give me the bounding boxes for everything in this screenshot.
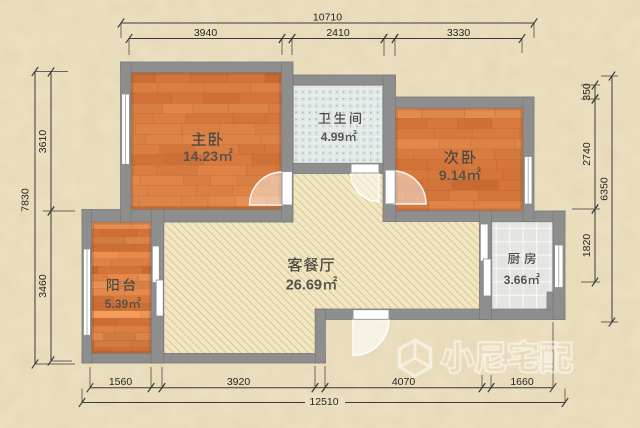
svg-text:2410: 2410 bbox=[326, 27, 350, 39]
svg-text:3610: 3610 bbox=[37, 130, 49, 154]
svg-text:3940: 3940 bbox=[194, 27, 218, 39]
svg-text:10710: 10710 bbox=[313, 12, 342, 24]
svg-text:3.66: 3.66 bbox=[504, 273, 528, 287]
svg-text:4070: 4070 bbox=[392, 376, 416, 388]
svg-text:1560: 1560 bbox=[109, 376, 133, 388]
svg-text:9.14: 9.14 bbox=[439, 167, 466, 183]
svg-text:14.23: 14.23 bbox=[183, 148, 218, 164]
svg-text:12510: 12510 bbox=[309, 396, 338, 408]
svg-text:3920: 3920 bbox=[227, 376, 251, 388]
svg-text:2740: 2740 bbox=[581, 142, 593, 166]
svg-text:350: 350 bbox=[581, 83, 593, 101]
svg-text:26.69: 26.69 bbox=[286, 278, 322, 294]
svg-text:3460: 3460 bbox=[37, 274, 49, 298]
svg-text:3330: 3330 bbox=[447, 27, 471, 39]
svg-text:1660: 1660 bbox=[510, 376, 534, 388]
svg-text:6350: 6350 bbox=[599, 177, 611, 201]
svg-text:1820: 1820 bbox=[581, 234, 593, 258]
svg-text:7830: 7830 bbox=[20, 188, 32, 212]
svg-text:4.99: 4.99 bbox=[321, 130, 345, 144]
svg-text:5.39: 5.39 bbox=[105, 297, 129, 311]
